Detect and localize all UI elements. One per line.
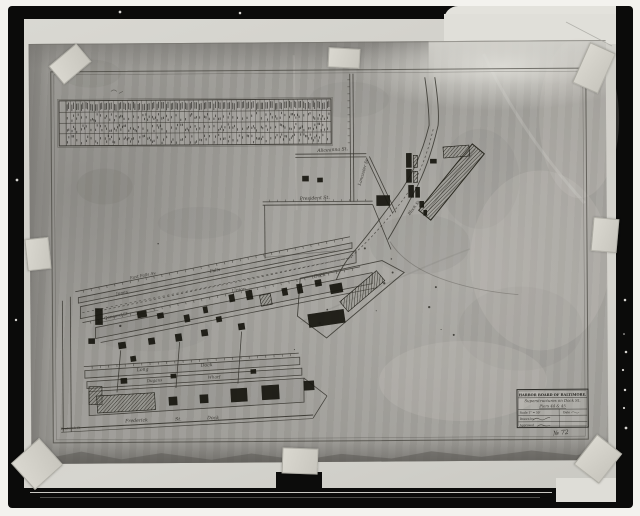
- table-figure-mark: [209, 135, 210, 137]
- street-label-union-dock: Dock: [312, 272, 326, 280]
- table-figure-mark: [187, 103, 188, 110]
- table-figure-mark: [210, 102, 211, 109]
- ink-dot: [376, 310, 377, 311]
- table-figure-mark: [73, 115, 74, 117]
- table-figure-mark: [155, 116, 156, 118]
- table-figure-mark: [201, 139, 202, 141]
- building: [95, 309, 102, 325]
- street-line: [313, 396, 327, 418]
- table-figure-mark: [94, 119, 95, 121]
- table-figure-mark: [195, 125, 196, 127]
- table-figure-mark: [195, 102, 196, 109]
- table-figure-mark: [119, 116, 120, 118]
- table-figure-mark: [266, 125, 267, 127]
- table-figure-mark: [181, 139, 182, 141]
- ink-dot: [326, 309, 328, 311]
- table-figure-mark: [166, 136, 167, 138]
- table-figure-mark: [308, 137, 309, 139]
- building: [229, 294, 235, 302]
- table-figure-mark: [154, 130, 155, 132]
- table-figure-mark: [190, 103, 191, 110]
- table-figure-mark: [147, 129, 148, 131]
- building: [251, 369, 256, 373]
- ink-dot: [294, 349, 295, 350]
- building: [443, 145, 470, 158]
- table-figure-mark: [128, 103, 129, 110]
- table-figure-mark: [256, 129, 257, 131]
- table-figure-mark: [72, 130, 73, 132]
- table-figure-mark: [187, 128, 188, 130]
- table-figure-mark: [289, 138, 290, 140]
- table-figure-mark: [299, 116, 300, 118]
- table-figure-mark: [180, 124, 181, 126]
- building: [203, 306, 208, 313]
- table-figure-mark: [132, 138, 133, 140]
- table-figure-mark: [214, 125, 215, 127]
- table-figure-mark: [289, 101, 290, 108]
- table-figure-mark: [251, 127, 252, 129]
- table-figure-mark: [171, 116, 172, 118]
- table-figure-mark: [237, 102, 238, 109]
- table-figure-mark: [294, 126, 295, 128]
- table-figure-mark: [84, 127, 85, 129]
- table-figure-mark: [152, 103, 153, 110]
- table-figure-mark: [90, 104, 91, 111]
- table-figure-mark: [196, 116, 197, 118]
- table-figure-mark: [300, 101, 301, 108]
- torn-edge-shadow: [31, 448, 608, 464]
- table-figure-mark: [158, 113, 159, 115]
- table-figure-mark: [157, 136, 158, 138]
- table-figure-mark: [128, 130, 129, 132]
- archival-photo: Aliceanna St. Lancaster St President St.…: [0, 0, 640, 516]
- table-figure-mark: [124, 118, 125, 120]
- table-figure-mark: [182, 138, 183, 140]
- table-figure-mark: [106, 103, 107, 110]
- table-figure-mark: [78, 113, 79, 115]
- table-figure-mark: [78, 103, 79, 110]
- table-figure-mark: [190, 141, 191, 143]
- table-figure-mark: [97, 142, 98, 144]
- building: [200, 395, 208, 403]
- table-figure-mark: [158, 126, 159, 128]
- table-figure-mark: [318, 117, 319, 119]
- table-figure-mark: [234, 103, 235, 110]
- table-figure-mark: [100, 137, 101, 139]
- table-figure-mark: [247, 117, 248, 119]
- table-figure-mark: [305, 103, 306, 110]
- table-figure-mark: [213, 104, 214, 111]
- table-figure-mark: [281, 112, 282, 114]
- street-line: [61, 419, 313, 433]
- dust-speck: [239, 12, 242, 15]
- table-figure-mark: [223, 102, 224, 109]
- table-figure-mark: [143, 128, 144, 130]
- table-figure-mark: [81, 104, 82, 111]
- table-figure-mark: [106, 141, 107, 143]
- table-figure-mark: [81, 116, 82, 118]
- table-figure-mark: [176, 102, 177, 109]
- table-figure-mark: [258, 138, 259, 140]
- table-figure-mark: [327, 128, 328, 130]
- table-figure-mark: [86, 140, 87, 142]
- table-figure-mark: [97, 113, 98, 115]
- building: [406, 153, 411, 167]
- table-figure-mark: [247, 134, 248, 136]
- dust-speck: [622, 369, 624, 371]
- table-figure-mark: [173, 138, 174, 140]
- table-figure-mark: [223, 138, 224, 140]
- table-figure-mark: [162, 117, 163, 119]
- table-figure-mark: [200, 139, 201, 141]
- table-figure-mark: [105, 117, 106, 119]
- ink-dot: [392, 272, 394, 274]
- table-figure-mark: [229, 112, 230, 114]
- table-figure-mark: [233, 127, 234, 129]
- table-figure-mark: [117, 126, 118, 128]
- street-label-dugans: Dugans: [146, 377, 163, 383]
- table-figure-mark: [205, 102, 206, 109]
- table-figure-mark: [308, 127, 309, 129]
- table-figure-mark: [242, 102, 243, 109]
- table-figure-mark: [114, 104, 115, 111]
- table-figure-mark: [314, 117, 315, 119]
- table-figure-mark: [318, 140, 319, 142]
- table-figure-mark: [133, 102, 134, 109]
- table-figure-mark: [120, 102, 121, 109]
- table-figure-mark: [215, 135, 216, 137]
- table-figure-mark: [215, 101, 216, 108]
- building: [330, 283, 343, 294]
- table-figure-mark: [310, 112, 311, 114]
- table-figure-mark: [135, 104, 136, 111]
- table-figure-mark: [272, 116, 273, 118]
- dust-speck: [623, 333, 625, 335]
- table-figure-mark: [130, 104, 131, 111]
- table-figure-mark: [237, 117, 238, 119]
- table-figure-mark: [318, 101, 319, 108]
- table-figure-mark: [130, 127, 131, 129]
- street-label-aliceanna: Aliceanna St.: [316, 146, 349, 154]
- table-figure-mark: [327, 138, 328, 140]
- table-figure-mark: [206, 116, 207, 118]
- table-figure-mark: [313, 128, 314, 130]
- table-figure-mark: [277, 117, 278, 119]
- table-figure-mark: [152, 141, 153, 143]
- table-figure-mark: [258, 102, 259, 109]
- table-figure-mark: [113, 141, 114, 143]
- table-figure-mark: [168, 102, 169, 109]
- table-figure-mark: [147, 138, 148, 140]
- table-figure-mark: [316, 134, 317, 136]
- table-figure-mark: [299, 101, 300, 108]
- table-figure-mark: [296, 116, 297, 118]
- table-figure-mark: [294, 101, 295, 108]
- table-figure-mark: [310, 103, 311, 110]
- table-figure-mark: [185, 118, 186, 120]
- building: [377, 196, 390, 206]
- table-figure-mark: [267, 102, 268, 109]
- table-figure-mark: [323, 134, 324, 136]
- table-figure-mark: [275, 115, 276, 117]
- table-figure-mark: [67, 104, 68, 111]
- table-figure-mark: [315, 136, 316, 138]
- title-drawn-by: Drawn by: [520, 417, 535, 421]
- table-figure-mark: [67, 117, 68, 119]
- table-figure-mark: [116, 104, 117, 111]
- table-figure-mark: [266, 140, 267, 142]
- table-figure-mark: [81, 128, 82, 130]
- table-figure-mark: [130, 140, 131, 142]
- table-figure-mark: [87, 136, 88, 138]
- table-figure-mark: [125, 136, 126, 138]
- table-figure-mark: [125, 104, 126, 111]
- table-figure-mark: [247, 127, 248, 129]
- table-figure-mark: [125, 125, 126, 127]
- table-figure-mark: [87, 103, 88, 110]
- table-figure-mark: [119, 124, 120, 126]
- building: [315, 280, 322, 287]
- table-figure-mark: [305, 135, 306, 137]
- table-figure-mark: [144, 104, 145, 111]
- table-figure-mark: [275, 136, 276, 138]
- table-figure-mark: [109, 119, 110, 121]
- building: [137, 310, 147, 318]
- table-figure-mark: [196, 140, 197, 142]
- table-figure-mark: [163, 139, 164, 141]
- title-scale: Scale 1" = 50': [520, 410, 541, 414]
- table-figure-mark: [204, 116, 205, 118]
- table-figure-mark: [143, 135, 144, 137]
- building: [430, 159, 436, 163]
- table-figure-mark: [261, 103, 262, 110]
- table-figure-mark: [275, 126, 276, 128]
- building: [406, 169, 411, 182]
- table-figure-mark: [83, 125, 84, 127]
- table-figure-mark: [224, 102, 225, 109]
- table-figure-mark: [86, 125, 87, 127]
- table-figure-mark: [142, 104, 143, 111]
- building: [175, 334, 182, 342]
- street-label-long: Long: [136, 367, 149, 374]
- table-figure-mark: [68, 129, 69, 131]
- table-figure-mark: [171, 141, 172, 143]
- table-figure-mark: [262, 127, 263, 129]
- table-figure-mark: [204, 135, 205, 137]
- table-figure-mark: [243, 101, 244, 108]
- table-figure-mark: [285, 114, 286, 116]
- building: [304, 381, 315, 391]
- table-figure-mark: [206, 138, 207, 140]
- table-figure-mark: [324, 102, 325, 109]
- dust-speck: [625, 427, 628, 430]
- note-scribble: [111, 90, 123, 94]
- ink-dot: [319, 322, 321, 324]
- table-figure-mark: [302, 125, 303, 127]
- table-figure-mark: [114, 141, 115, 143]
- table-figure-mark: [116, 115, 117, 117]
- street-line: [263, 204, 373, 205]
- table-figure-mark: [166, 130, 167, 132]
- table-figure-mark: [239, 101, 240, 108]
- table-figure-mark: [177, 124, 178, 126]
- table-figure-mark: [263, 136, 264, 138]
- table-figure-mark: [199, 116, 200, 118]
- ink-dot: [435, 286, 437, 288]
- table-figure-mark: [275, 103, 276, 110]
- street-label-long-dock: Dock: [200, 362, 213, 369]
- dust-speck: [625, 351, 628, 354]
- dust-speck: [119, 11, 122, 14]
- building: [238, 323, 245, 330]
- table-figure-mark: [262, 103, 263, 110]
- table-figure-mark: [310, 127, 311, 129]
- table-figure-mark: [242, 128, 243, 130]
- building: [97, 393, 156, 413]
- table-figure-mark: [300, 127, 301, 129]
- table-figure-mark: [91, 137, 92, 139]
- table-figure-mark: [299, 127, 300, 129]
- table-figure-mark: [233, 139, 234, 141]
- table-figure-mark: [307, 135, 308, 137]
- ink-dot: [441, 329, 442, 330]
- table-figure-mark: [318, 123, 319, 125]
- table-figure-mark: [303, 102, 304, 109]
- table-figure-mark: [143, 114, 144, 116]
- table-figure-mark: [190, 126, 191, 128]
- table-figure-mark: [308, 102, 309, 109]
- tape-bottom-center: [282, 447, 319, 474]
- table-figure-mark: [105, 104, 106, 111]
- table-figure-mark: [102, 129, 103, 131]
- building: [259, 293, 272, 306]
- table-figure-mark: [86, 102, 87, 109]
- table-figure-mark: [146, 113, 147, 115]
- table-figure-mark: [166, 115, 167, 117]
- table-figure-mark: [220, 128, 221, 130]
- table-figure-mark: [218, 102, 219, 109]
- map-linework: Aliceanna St. Lancaster St President St.…: [0, 0, 640, 516]
- table-figure-mark: [147, 104, 148, 111]
- table-figure-mark: [304, 133, 305, 135]
- table-figure-mark: [322, 115, 323, 117]
- table-figure-mark: [149, 116, 150, 118]
- table-figure-mark: [270, 113, 271, 115]
- table-figure-mark: [176, 142, 177, 144]
- table-figure-mark: [133, 128, 134, 130]
- building: [302, 176, 308, 181]
- street-label-frederick-margin: Frederick St: [60, 426, 81, 431]
- table-figure-mark: [239, 134, 240, 136]
- building: [317, 178, 322, 182]
- table-figure-mark: [228, 123, 229, 125]
- table-figure-mark: [73, 135, 74, 137]
- table-figure-mark: [229, 136, 230, 138]
- table-figure-mark: [261, 117, 262, 119]
- table-figure-mark: [122, 115, 123, 117]
- table-figure-mark: [270, 127, 271, 129]
- table-figure-mark: [252, 135, 253, 137]
- table-figure-mark: [95, 120, 96, 122]
- title-agency: HARBOR BOARD OF BALTIMORE.: [519, 393, 587, 397]
- table-figure-mark: [313, 101, 314, 108]
- table-figure-mark: [196, 128, 197, 130]
- table-figure-mark: [147, 119, 148, 121]
- table-figure-mark: [163, 102, 164, 109]
- table-figure-mark: [128, 118, 129, 120]
- table-figure-mark: [185, 129, 186, 131]
- table-figure-mark: [225, 126, 226, 128]
- table-figure-mark: [285, 135, 286, 137]
- table-figure-mark: [92, 104, 93, 111]
- table-figure-mark: [138, 141, 139, 143]
- building: [171, 374, 176, 378]
- street-line: [70, 297, 71, 432]
- table-figure-mark: [220, 118, 221, 120]
- table-figure-mark: [281, 124, 282, 126]
- table-figure-mark: [304, 129, 305, 131]
- street-label-frederick-st: St.: [175, 416, 182, 422]
- table-figure-mark: [228, 140, 229, 142]
- table-figure-mark: [199, 127, 200, 129]
- pier-data-table: [57, 88, 332, 147]
- building: [416, 187, 420, 197]
- building: [231, 388, 248, 402]
- table-figure-mark: [111, 129, 112, 131]
- street-label-frederick-dock: Dock: [206, 415, 219, 421]
- table-figure-mark: [215, 115, 216, 117]
- table-figure-mark: [100, 114, 101, 116]
- table-figure-mark: [319, 102, 320, 109]
- table-figure-mark: [314, 124, 315, 126]
- table-figure-mark: [253, 141, 254, 143]
- table-figure-mark: [192, 135, 193, 137]
- ink-dot: [391, 258, 392, 259]
- building: [201, 329, 208, 336]
- building: [409, 185, 414, 197]
- table-figure-mark: [171, 103, 172, 110]
- table-figure-mark: [232, 116, 233, 118]
- building: [89, 339, 95, 344]
- table-figure-mark: [180, 103, 181, 110]
- table-figure-mark: [242, 136, 243, 138]
- table-figure-mark: [209, 102, 210, 109]
- table-figure-mark: [138, 104, 139, 111]
- table-figure-mark: [153, 102, 154, 109]
- table-figure-mark: [209, 126, 210, 128]
- table-figure-mark: [251, 102, 252, 109]
- table-figure-mark: [135, 129, 136, 131]
- table-figure-mark: [76, 131, 77, 133]
- table-figure-mark: [299, 139, 300, 141]
- table-figure-mark: [73, 103, 74, 110]
- ink-dot: [428, 306, 430, 308]
- table-figure-mark: [253, 125, 254, 127]
- table-figure-mark: [191, 102, 192, 109]
- street-line: [62, 301, 63, 432]
- table-figure-mark: [97, 104, 98, 111]
- light-patch: [469, 170, 610, 351]
- table-figure-mark: [81, 142, 82, 144]
- table-figure-mark: [172, 103, 173, 110]
- table-figure-mark: [149, 103, 150, 110]
- table-figure-mark: [314, 102, 315, 109]
- table-figure-mark: [286, 135, 287, 137]
- table-figure-mark: [129, 137, 130, 139]
- dust-speck: [15, 319, 17, 321]
- table-figure-mark: [291, 128, 292, 130]
- table-figure-mark: [292, 135, 293, 137]
